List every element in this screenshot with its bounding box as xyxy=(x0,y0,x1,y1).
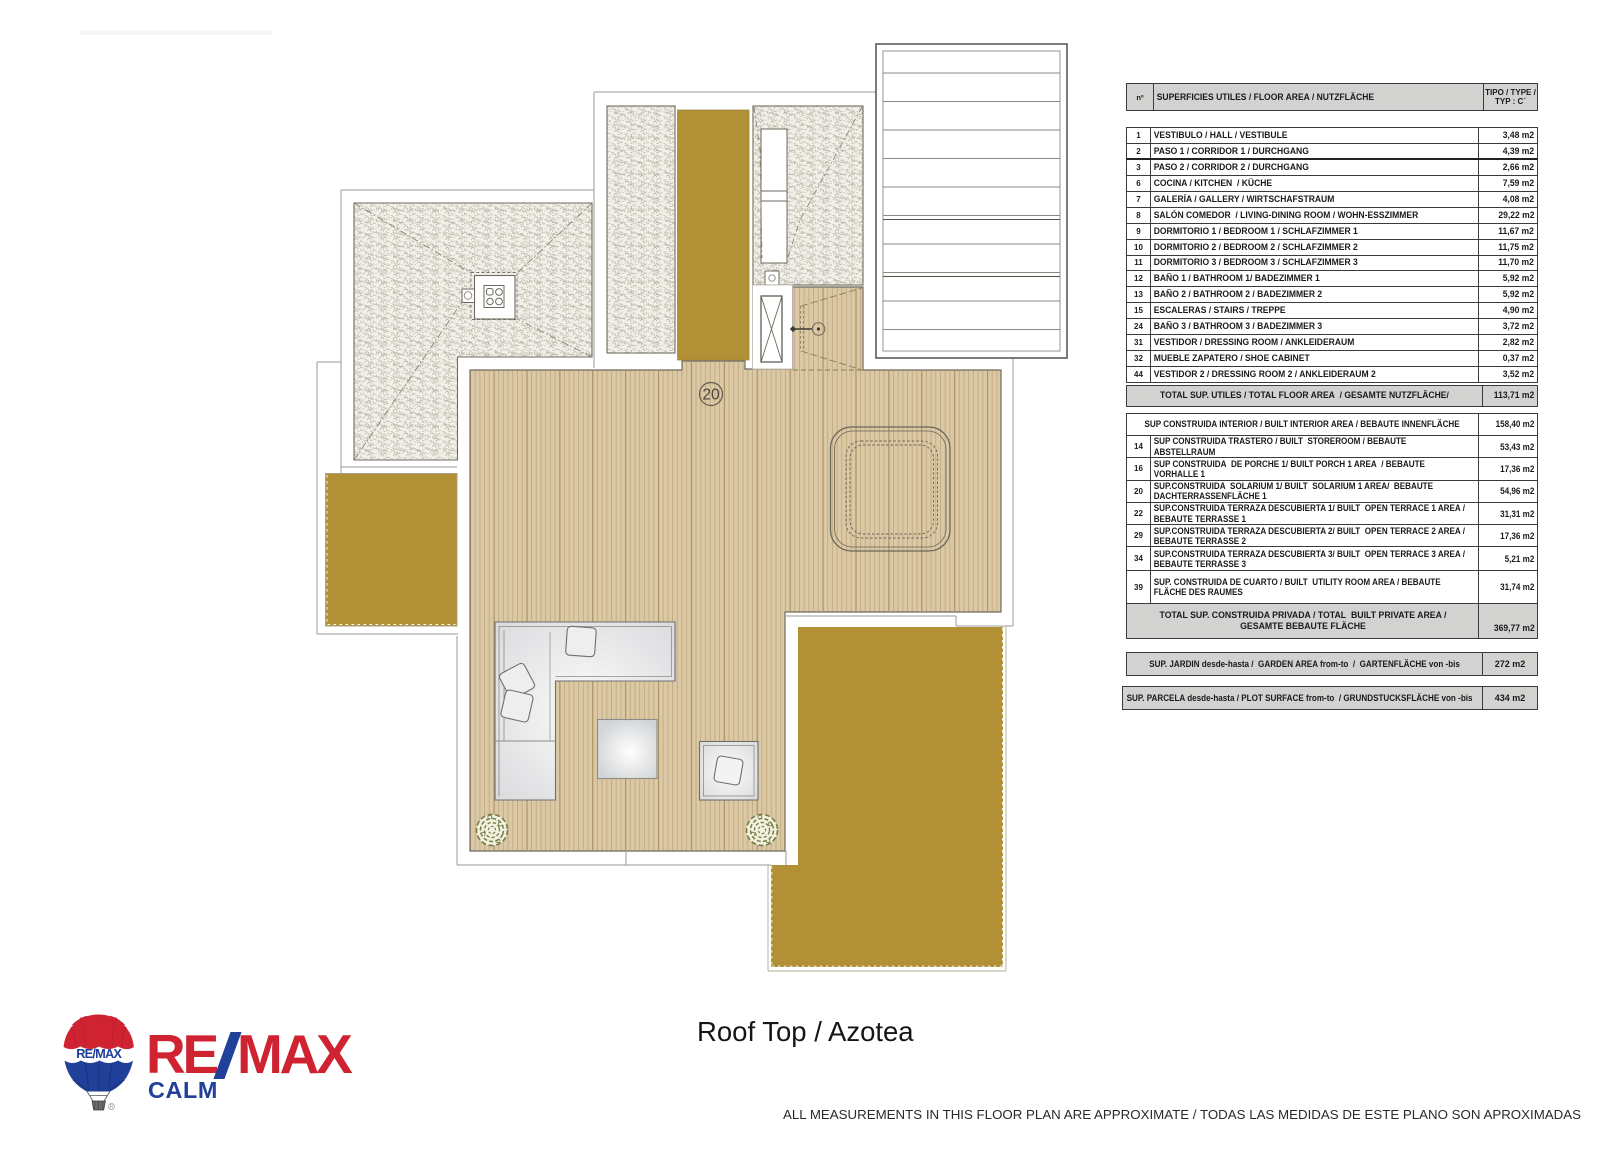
svg-text:RE/MAX: RE/MAX xyxy=(76,1046,122,1061)
svg-text:R: R xyxy=(110,1105,114,1111)
svg-text:20: 20 xyxy=(702,387,720,404)
